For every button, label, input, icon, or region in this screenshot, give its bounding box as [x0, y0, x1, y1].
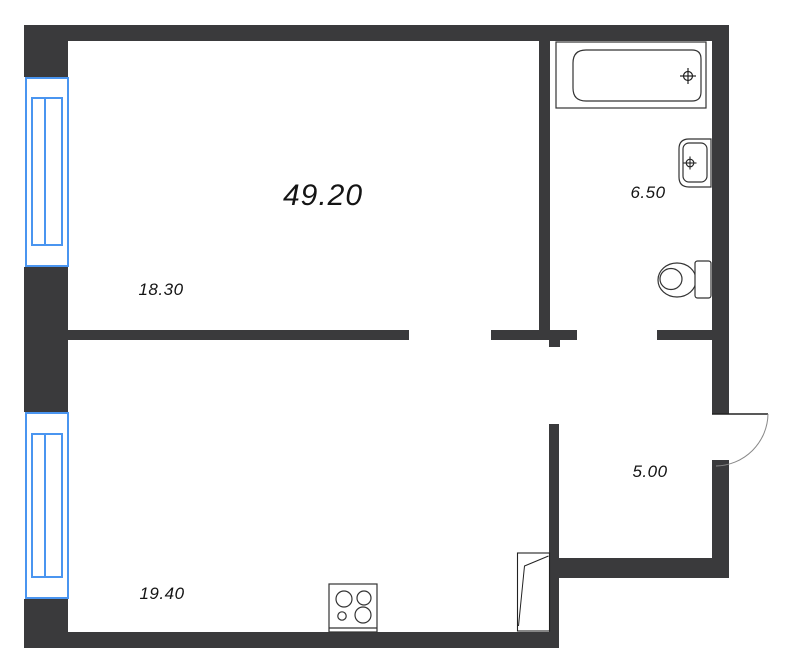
- bathtub-icon: [556, 42, 706, 108]
- sink-icon: [679, 139, 711, 187]
- hallway-area-label: 5.00: [632, 462, 667, 482]
- stove-burner: [357, 591, 371, 605]
- toilet-tank: [695, 261, 711, 298]
- toilet-bowl-inner: [660, 269, 682, 290]
- toilet-icon: [658, 261, 711, 298]
- stove-icon: [329, 584, 377, 632]
- total-area-label: 49.20: [283, 179, 363, 213]
- bathroom-area-label: 6.50: [630, 183, 665, 203]
- entrance-door-swing-arc: [716, 414, 768, 466]
- stove-burner: [338, 612, 346, 620]
- floor-plan: 49.20 18.30 6.50 19.40 5.00: [0, 0, 800, 672]
- interior-door-icon: [518, 553, 550, 631]
- stove-burner: [355, 607, 371, 623]
- room-lower-left-area-label: 19.40: [139, 584, 184, 604]
- stove-burner: [336, 591, 352, 607]
- room-upper-left-area-label: 18.30: [138, 280, 183, 300]
- entrance-door-icon: [712, 414, 768, 466]
- fixtures-layer: [0, 0, 800, 672]
- stove-body: [329, 584, 377, 632]
